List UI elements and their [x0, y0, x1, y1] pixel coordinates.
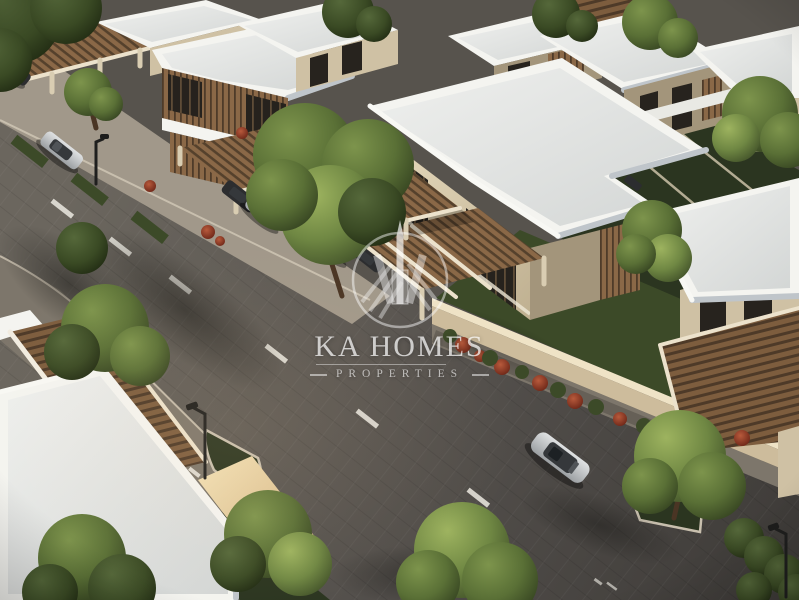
aerial-render-scene: KA HOMES PROPERTIES	[0, 0, 799, 600]
villa-community-illustration	[0, 0, 799, 600]
light-overlays	[0, 0, 799, 600]
